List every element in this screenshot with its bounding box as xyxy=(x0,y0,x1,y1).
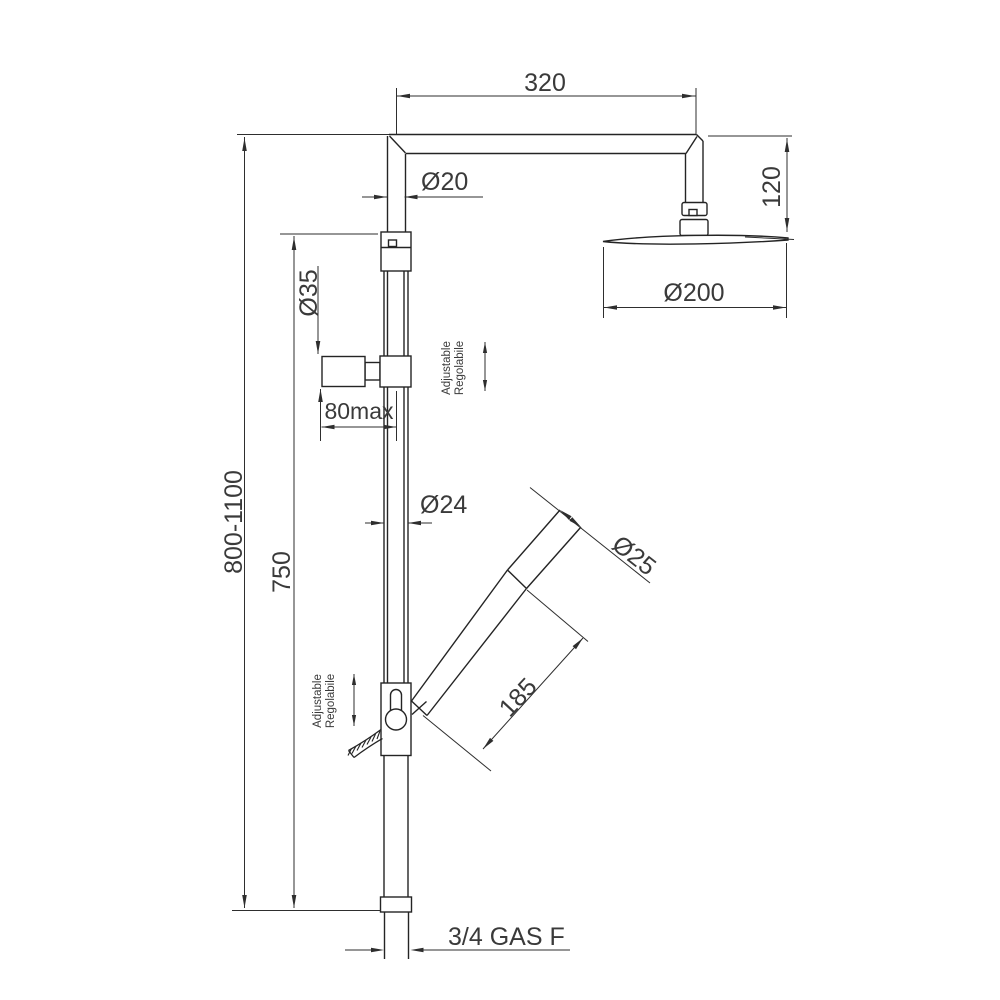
shower-hose xyxy=(348,730,383,758)
dim-head-diameter-label: Ø200 xyxy=(663,279,724,307)
adjustable-en-lower: Adjustable xyxy=(312,674,324,728)
dim-rail-diameter-label: Ø24 xyxy=(420,491,467,519)
dim-wall-distance-label: 80max xyxy=(324,398,394,424)
pipe-coupling xyxy=(381,232,411,271)
adjustable-label-upper: Adjustable Regolabile xyxy=(441,341,466,395)
dim-wall-bracket-diameter-label: Ø35 xyxy=(295,269,323,316)
adjustable-it-upper: Regolabile xyxy=(454,341,466,395)
dim-handshower-diameter-label: Ø25 xyxy=(607,530,661,581)
adjustable-en-upper: Adjustable xyxy=(441,341,453,395)
dim-upper-pipe-diameter-label: Ø20 xyxy=(421,168,468,196)
adjustable-it-lower: Regolabile xyxy=(325,674,337,728)
bottom-connector xyxy=(381,897,412,959)
dimension-lines xyxy=(232,88,794,950)
shower-column-drawing: 320 Ø20 120 Ø200 Ø35 80max 800-1100 750 … xyxy=(0,0,1000,1000)
shower-arm xyxy=(389,135,703,154)
dim-total-height-label: 800-1100 xyxy=(220,470,248,574)
hand-shower xyxy=(412,510,582,716)
dim-bottom-connection-label: 3/4 GAS F xyxy=(448,923,565,951)
adjustable-label-lower: Adjustable Regolabile xyxy=(312,674,337,728)
hand-shower-holder xyxy=(381,683,411,756)
dim-arm-length-label: 320 xyxy=(524,69,566,97)
wall-bracket xyxy=(322,356,411,387)
dim-head-drop-label: 120 xyxy=(758,166,786,208)
technical-drawing-canvas: 320 Ø20 120 Ø200 Ø35 80max 800-1100 750 … xyxy=(0,0,1000,1000)
dim-handshower-length-label: 185 xyxy=(494,673,543,723)
dim-rail-height-label: 750 xyxy=(268,551,296,593)
